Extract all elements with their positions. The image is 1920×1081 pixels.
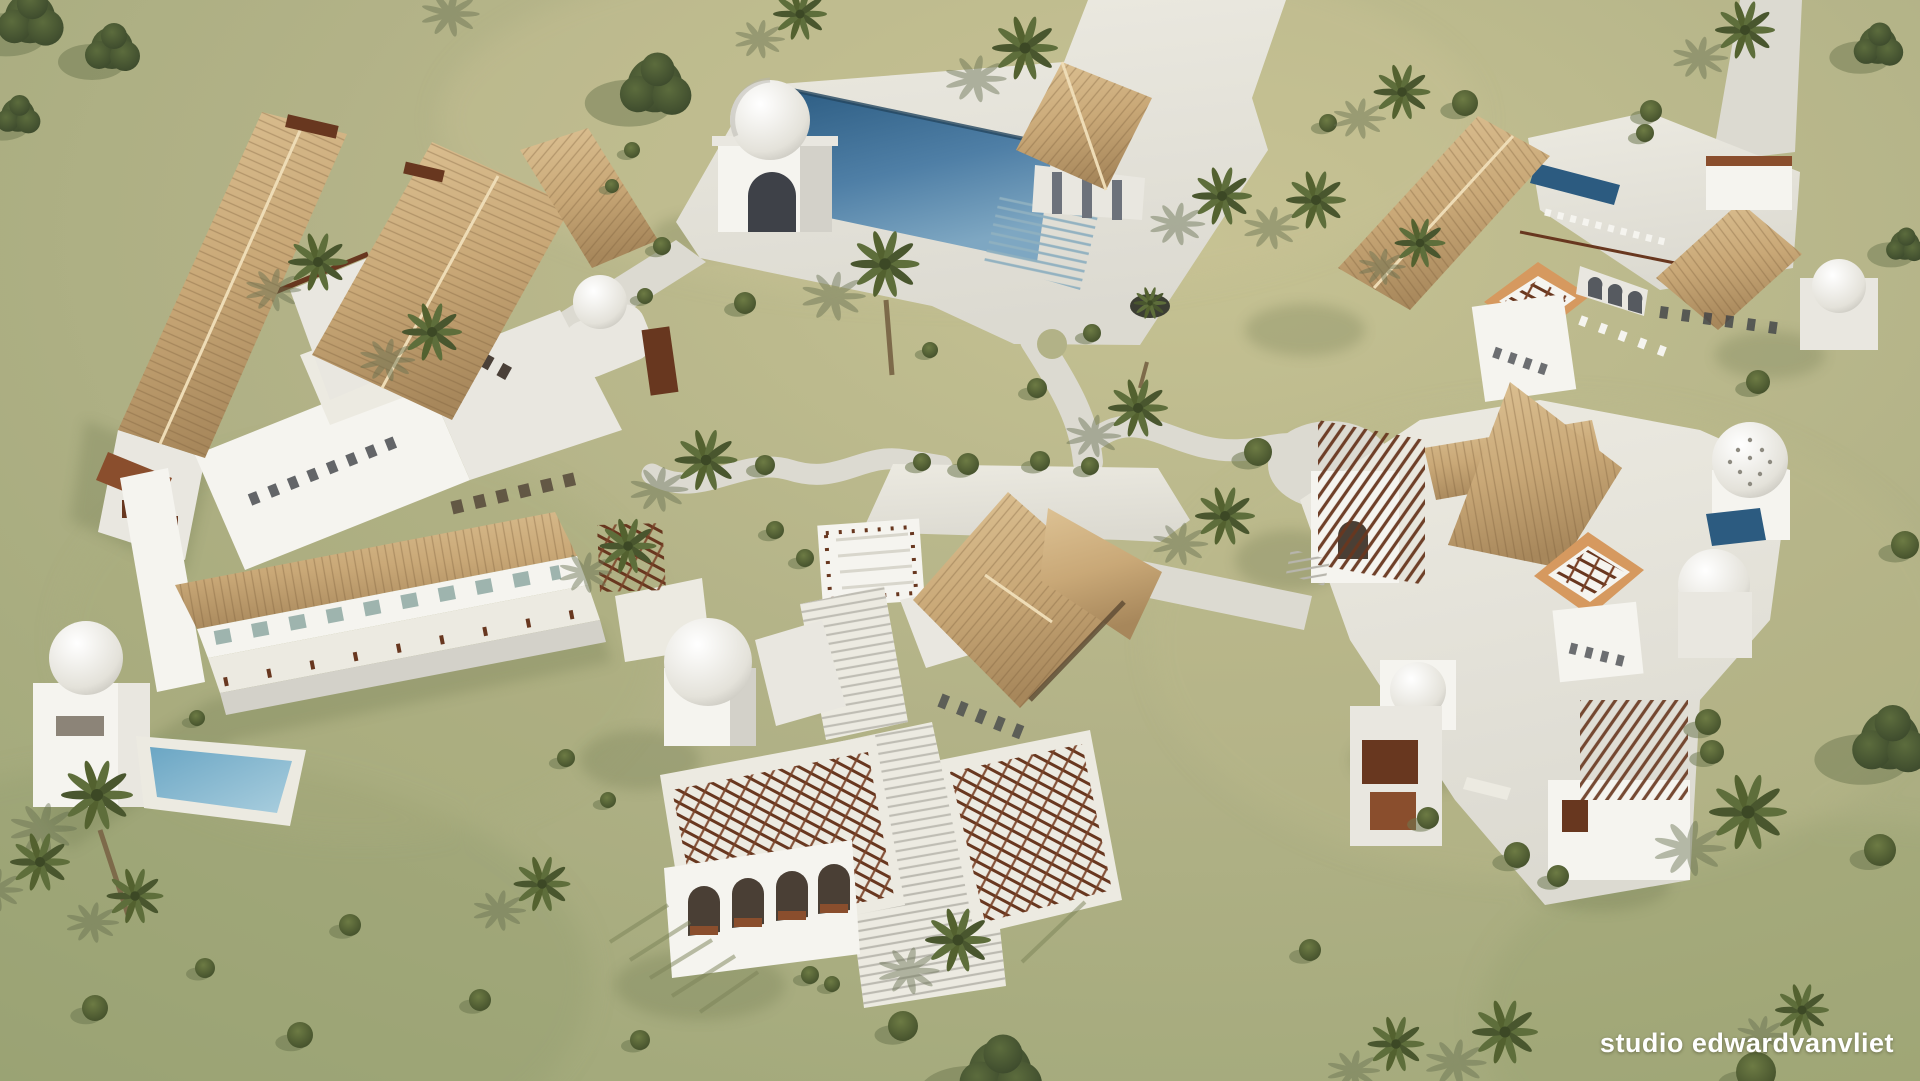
- rendering-canvas: [0, 0, 1920, 1081]
- mashrabiya-window-1: [1362, 740, 1418, 784]
- entrance-pergola-beams: [1318, 420, 1425, 585]
- west-villa-dome: [573, 275, 627, 329]
- se-wing-door: [1562, 800, 1588, 832]
- studio-watermark: studio edwardvanvliet: [1600, 1028, 1894, 1059]
- pavilion-arch: [748, 172, 796, 232]
- ne-pergola-tower: [1472, 294, 1576, 402]
- se-south-pergola: [1580, 700, 1688, 800]
- ne-small-dome: [1812, 259, 1866, 313]
- pavilion-opening-3: [1112, 180, 1122, 220]
- rendering-stage: studio edwardvanvliet: [0, 0, 1920, 1081]
- ne-tower: [1706, 160, 1792, 210]
- se-smooth-dome-base: [1678, 592, 1752, 658]
- tower-dome: [49, 621, 123, 695]
- central-villa-dome: [664, 618, 752, 706]
- pavilion-side-shade: [800, 142, 832, 232]
- se-pergola-tower: [1552, 602, 1643, 682]
- pavilion-opening-1: [1052, 172, 1062, 214]
- ne-tower-wood-cap: [1706, 156, 1792, 166]
- deck-notch: [1037, 329, 1067, 359]
- se-plunge-pool: [1706, 508, 1766, 546]
- tower-window: [56, 716, 104, 736]
